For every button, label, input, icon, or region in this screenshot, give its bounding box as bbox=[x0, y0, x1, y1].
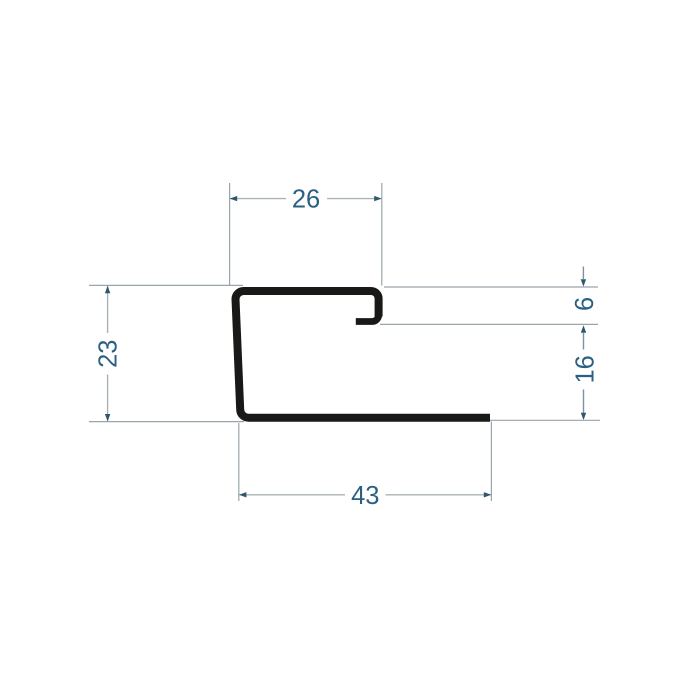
svg-text:6: 6 bbox=[571, 297, 599, 311]
svg-text:23: 23 bbox=[95, 340, 123, 368]
svg-text:16: 16 bbox=[571, 355, 599, 383]
svg-text:26: 26 bbox=[292, 186, 320, 214]
svg-text:43: 43 bbox=[351, 482, 379, 510]
